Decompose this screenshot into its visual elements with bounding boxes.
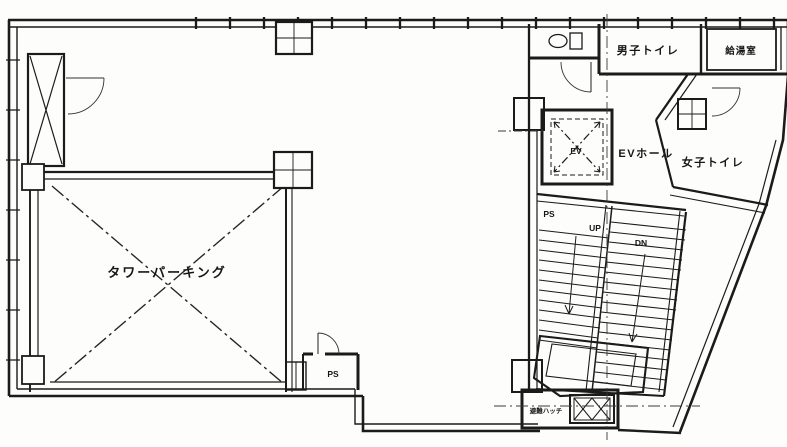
ev-label: EV (570, 146, 582, 156)
evac-hatch-label: 避難ハッチ (529, 406, 563, 415)
stair-ps-label: PS (543, 209, 555, 219)
corridor-wall (529, 24, 537, 392)
door-arc-ev-hall (561, 62, 591, 92)
toilet-fixture-icon (549, 35, 567, 48)
grid-columns (22, 22, 706, 392)
dn-label: DN (635, 238, 647, 248)
parking-x-centerlines (52, 186, 284, 384)
womens-toilet-label: 女子トイレ (682, 155, 745, 169)
tower-parking-label: タワーパーキング (107, 265, 226, 280)
floor-plan-canvas: タワーパーキング 男子トイレ 給湯室 (0, 0, 787, 447)
outer-walls (8, 20, 787, 433)
dn-arrow (629, 254, 645, 342)
stairs (534, 194, 686, 396)
stair-stringer (592, 206, 612, 392)
up-arrow (565, 236, 576, 314)
door-arc-top-left (66, 78, 104, 114)
mens-toilet-label: 男子トイレ (617, 44, 680, 57)
duct-shaft (28, 54, 64, 166)
kitchenette-label: 給湯室 (725, 45, 757, 57)
ps-room (286, 354, 358, 390)
up-label: UP (589, 223, 601, 233)
ps-room-label: PS (327, 369, 339, 379)
tower-parking-room (30, 168, 292, 392)
door-arc-womens (712, 88, 740, 116)
floor-plan-svg: タワーパーキング 男子トイレ 給湯室 (0, 0, 787, 447)
wc-booth (529, 24, 599, 74)
womens-toilet-room (656, 74, 768, 213)
door-arc-ps-room (318, 333, 339, 354)
